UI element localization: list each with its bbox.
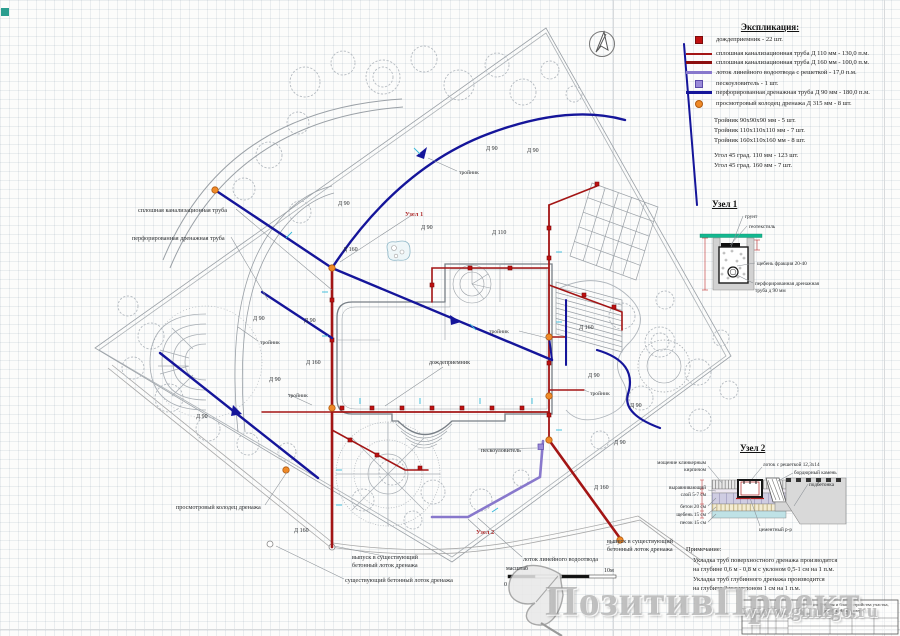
angle-line: Угол 45 град. 160 мм - 7 шт.: [714, 161, 798, 171]
node2-label: щебень 15 см: [676, 511, 706, 518]
sewer-pipe-160-symbol: [686, 61, 712, 64]
node2-label: слой 5-7 см: [681, 491, 707, 498]
note-title: Примечание:: [686, 545, 900, 555]
scale-tick-label: 0: [504, 582, 507, 588]
tee-label: тройник: [288, 392, 308, 399]
node2-label: выравнивающий: [669, 484, 706, 491]
pipe-diameter-label: Д 90: [486, 146, 498, 152]
drainage-wells: [212, 187, 623, 543]
north-arrow-icon: [590, 32, 615, 57]
plan-labels: Д 90Д 90Д 90Д 90Д 110Д 160Д 90Д 90Д 160Д…: [132, 146, 837, 588]
ginkgo-leaf-logo: [509, 565, 563, 636]
node2-label: кирпичом: [684, 467, 707, 473]
angles-list: Угол 45 град. 110 мм - 123 шт. Угол 45 г…: [714, 151, 798, 171]
node1-label: щебень фракция 20-40: [757, 260, 807, 267]
legend-item-label: лоток линейного водоотвода с решеткой - …: [716, 69, 857, 76]
callout-label: лоток линейного водоотвода: [523, 556, 598, 563]
amphitheater: [150, 306, 262, 418]
node2-label: лоток с решеткой 12,3х14: [763, 461, 820, 468]
outlet-circle: [267, 541, 273, 547]
legend-item: дождеприемник - 22 шт.: [684, 36, 900, 43]
pipe-diameter-label: Д 160: [294, 528, 309, 534]
legend-item-label: сплошная канализационная труба Д 160 мм …: [716, 59, 869, 66]
legend-item-label: сплошная канализационная труба Д 110 мм …: [716, 50, 869, 57]
scale-label: масштаб: [506, 565, 528, 572]
callout-label: сплошная канализационная труба: [138, 207, 227, 214]
pipe-diameter-label: Д 90: [196, 414, 208, 420]
node1-label: грунт: [745, 214, 758, 220]
fittings-list: Тройник 90х90х90 мм - 5 шт. Тройник 110х…: [714, 116, 805, 146]
linear-drain-symbol: [686, 71, 712, 73]
node1-label: геотекстиль: [749, 224, 776, 230]
pipe-diameter-label: Д 90: [269, 377, 281, 383]
callout-label: просмотровый колодец дренажа: [176, 504, 261, 511]
tee-label: тройник: [260, 339, 280, 346]
pipe-diameter-label: Д 90: [630, 403, 642, 409]
callout-label: выпуск в существующий: [607, 538, 674, 545]
node2-marker-label: Узел 2: [476, 529, 494, 536]
callout-label: перфорированная дренажная труба: [132, 235, 225, 242]
titleblock-line: Проект озеленения и благоустройства учас…: [789, 602, 897, 608]
tee-label: тройник: [459, 169, 479, 176]
titleblock-line: поселок Новые озера: [789, 608, 897, 614]
node1-label: труба д 90 мм: [755, 287, 786, 294]
legend-item: просмотровый колодец дренажа Д 315 мм - …: [684, 100, 900, 107]
node2-label: цементный р-р: [759, 526, 792, 533]
node2-label: бордюрный камень: [794, 469, 837, 476]
legend-item: лоток линейного водоотвода с решеткой - …: [684, 69, 900, 76]
pipe-diameter-label: Д 90: [338, 201, 350, 207]
sewer-pipe-110-symbol: [686, 53, 712, 55]
note-line: на глубине 0,6 м - 0,8 м с уклоном 0,5-1…: [693, 565, 900, 575]
corner-mark: [1, 8, 9, 16]
rain-inlet-symbol: [695, 36, 703, 44]
sand-trap-symbol: [695, 80, 703, 88]
existing-channel: [108, 365, 702, 565]
legend-item: пескоуловитель - 1 шт.: [684, 80, 900, 87]
fitting-line: Тройник 160х110х160 мм - 8 шт.: [714, 136, 805, 146]
legend-item-label: перфорированная дренажная труба Д 90 мм …: [716, 89, 870, 96]
pipe-diameter-label: Д 90: [304, 318, 316, 324]
node2-label: песок 15 см: [680, 520, 707, 526]
trees: [118, 46, 738, 529]
legend-item: сплошная канализационная труба Д 110 мм …: [684, 50, 900, 57]
pipe-diameter-label: Д 110: [492, 230, 506, 236]
callout-label: выпуск в существующий: [352, 554, 419, 561]
note-line: Укладка труб глубинного дренажа производ…: [693, 575, 900, 585]
note-line: на глубине 2 м с уклоном 1 см на 1 п.м.: [693, 584, 900, 594]
node2-label: бетон 20 см: [680, 503, 707, 510]
sand-trap-symbol: [538, 444, 544, 450]
callout-label: бетонный лоток дренажа: [607, 546, 673, 553]
fitting-line: Тройник 110х110х110 мм - 7 шт.: [714, 126, 805, 136]
sand-trap-label: пескоуловитель: [481, 448, 521, 454]
legend-item-label: дождеприемник - 22 шт.: [716, 36, 783, 43]
tee-label: тройник: [489, 328, 509, 335]
titleblock-text: Проект озеленения и благоустройства учас…: [789, 602, 897, 613]
pipe-diameter-label: Д 160: [579, 325, 594, 331]
flow-ticks: [286, 148, 562, 512]
callout-label: бетонный лоток дренажа: [352, 562, 418, 569]
note-block: Примечание: Укладка труб поверхностного …: [686, 545, 900, 594]
legend-item: перфорированная дренажная труба Д 90 мм …: [684, 89, 900, 96]
legend-item-label: просмотровый колодец дренажа Д 315 мм - …: [716, 100, 852, 107]
scale-tick-label: 10м: [604, 568, 614, 574]
node2-header: Узел 2: [740, 443, 765, 453]
drain-well-symbol: [695, 100, 703, 108]
pipe-diameter-label: Д 160: [306, 360, 321, 366]
node1-header: Узел 1: [712, 199, 737, 209]
fitting-line: Тройник 90х90х90 мм - 5 шт.: [714, 116, 805, 126]
node1-marker-label: Узел 1: [405, 211, 423, 218]
rain-inlet-label: дождеприемник: [429, 360, 470, 366]
pipe-diameter-label: Д 90: [527, 148, 539, 154]
callout-label: существующий бетонный лоток дренажа: [345, 577, 453, 584]
house-footprint: [337, 264, 622, 448]
plaza-fan: [336, 422, 440, 526]
node2-label: подбетонка: [809, 481, 835, 488]
legend-item-label: пескоуловитель - 1 шт.: [716, 80, 778, 87]
pipe-diameter-label: Д 90: [614, 440, 626, 446]
legend-item: сплошная канализационная труба Д 160 мм …: [684, 59, 900, 66]
pond: [387, 241, 410, 260]
pipe-diameter-label: Д 90: [588, 373, 600, 379]
flow-arrows: [231, 147, 461, 416]
property-boundary: [95, 28, 731, 562]
sewer-pipes: [262, 186, 622, 547]
legend: Экспликация: дождеприемник - 22 шт. спло…: [684, 22, 900, 107]
node2-label: мощение клинкерным: [657, 460, 707, 466]
pipe-diameter-label: Д 160: [343, 247, 358, 253]
pipe-diameter-label: Д 160: [594, 485, 609, 491]
node1-label: перфорированная дренажная: [755, 280, 820, 287]
angle-line: Угол 45 град. 110 мм - 123 шт.: [714, 151, 798, 161]
pipe-diameter-label: Д 90: [253, 316, 265, 322]
note-line: Укладка труб поверхностного дренажа прои…: [693, 556, 900, 566]
pipe-diameter-label: Д 90: [421, 225, 433, 231]
drain-pipe-symbol: [686, 91, 712, 94]
tee-label: тройник: [590, 390, 610, 397]
legend-title: Экспликация:: [710, 22, 830, 32]
